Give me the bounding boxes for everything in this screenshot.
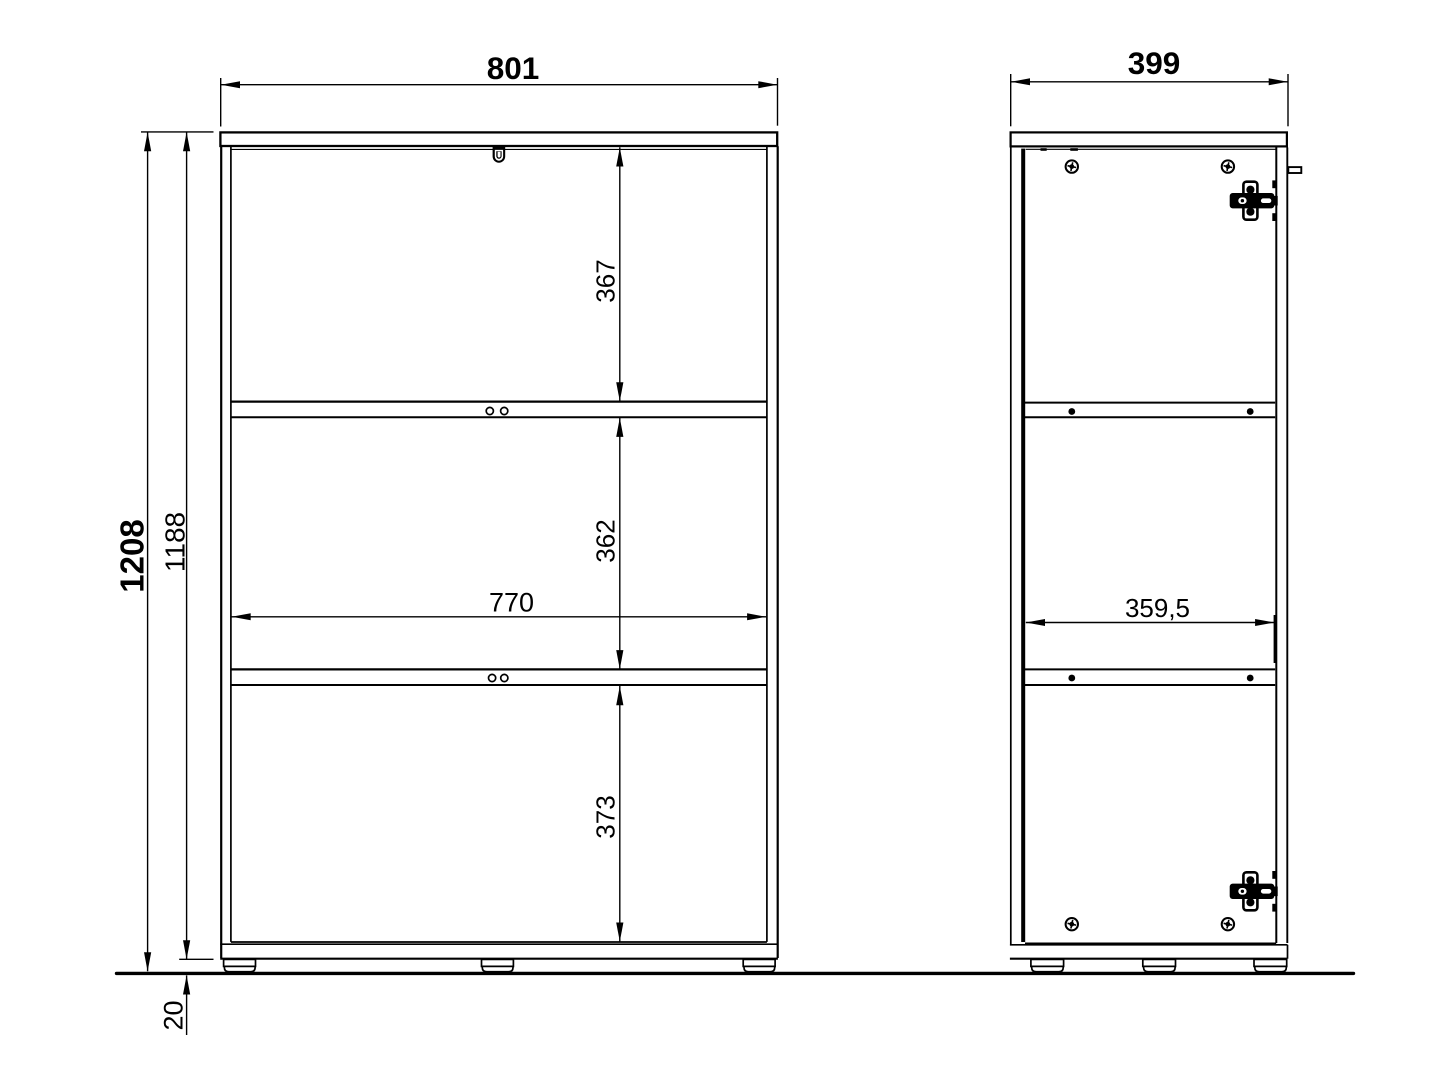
svg-text:373: 373 <box>591 795 621 838</box>
svg-text:1188: 1188 <box>160 512 191 572</box>
svg-text:20: 20 <box>159 1000 189 1030</box>
svg-text:362: 362 <box>591 519 621 562</box>
svg-text:801: 801 <box>487 50 540 86</box>
svg-text:367: 367 <box>591 259 621 302</box>
svg-text:1208: 1208 <box>113 519 150 592</box>
svg-text:770: 770 <box>489 587 534 617</box>
svg-text:399: 399 <box>1128 45 1181 81</box>
svg-text:359,5: 359,5 <box>1125 593 1190 623</box>
